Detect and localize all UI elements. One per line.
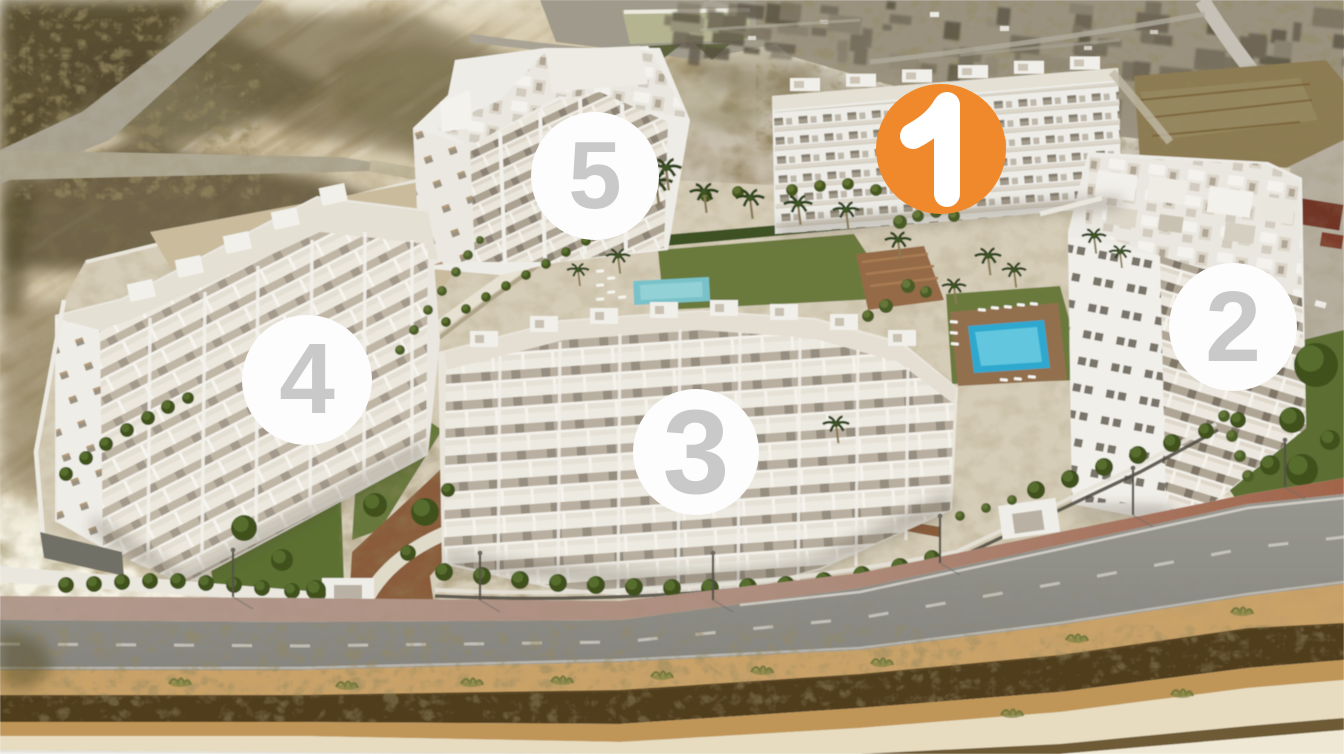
svg-text:3: 3 — [663, 385, 730, 519]
svg-text:4: 4 — [279, 323, 335, 435]
svg-text:2: 2 — [1205, 271, 1261, 383]
svg-text:5: 5 — [568, 122, 621, 229]
